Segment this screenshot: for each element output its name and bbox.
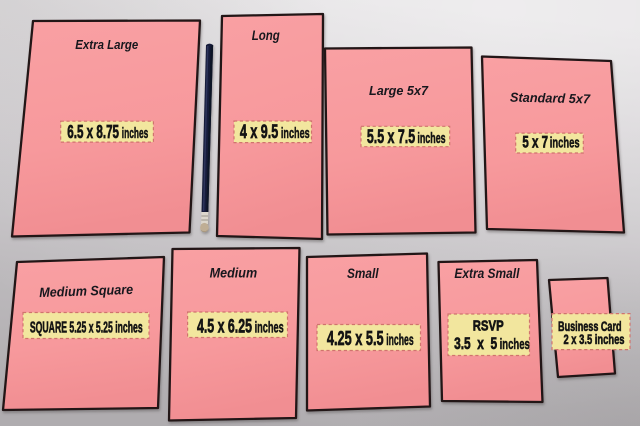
svg-text:Small: Small	[347, 266, 379, 281]
svg-text:inches: inches	[386, 332, 414, 349]
svg-text:6.5 x 8.75: 6.5 x 8.75	[67, 122, 119, 142]
svg-text:RSVP: RSVP	[473, 317, 504, 334]
svg-text:inches: inches	[550, 135, 580, 152]
svg-text:Medium: Medium	[210, 266, 258, 281]
svg-text:SQUARE 5.25 x 5.25 inches: SQUARE 5.25 x 5.25 inches	[30, 320, 143, 337]
svg-text:4 x 9.5: 4 x 9.5	[240, 122, 279, 143]
svg-text:Extra Small: Extra Small	[454, 266, 519, 281]
svg-text:inches: inches	[255, 319, 284, 336]
svg-text:inches: inches	[417, 130, 445, 147]
svg-text:Large 5x7: Large 5x7	[369, 83, 429, 98]
svg-text:5.5 x 7.5: 5.5 x 7.5	[367, 127, 415, 148]
svg-text:Long: Long	[252, 28, 281, 43]
svg-text:inches: inches	[500, 336, 530, 353]
svg-text:inches: inches	[122, 126, 149, 142]
svg-text:4.25 x 5.5: 4.25 x 5.5	[327, 328, 384, 350]
svg-text:Standard 5x7: Standard 5x7	[510, 90, 591, 107]
svg-text:inches: inches	[281, 125, 310, 142]
svg-text:Extra Large: Extra Large	[75, 37, 138, 52]
svg-text:3.5 x 5: 3.5 x 5	[454, 334, 497, 353]
svg-text:4.5 x 6.25: 4.5 x 6.25	[197, 316, 252, 337]
svg-text:2 x 3.5 inches: 2 x 3.5 inches	[563, 332, 624, 347]
svg-text:5 x 7: 5 x 7	[522, 134, 548, 152]
